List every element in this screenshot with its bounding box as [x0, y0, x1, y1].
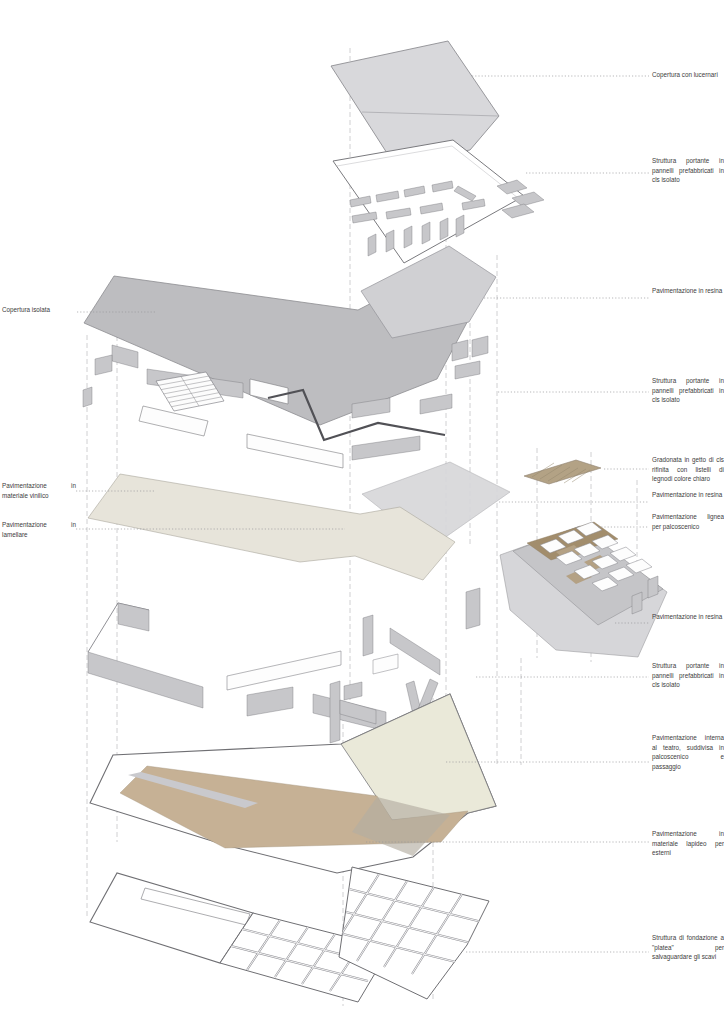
- label-pavimentazione-resina-2: Pavimentazione in resina: [652, 490, 724, 500]
- stage-module-layer: [500, 522, 667, 657]
- label-struttura-portante-2: Struttura portante in pannelli prefabbri…: [652, 376, 724, 405]
- theatre-floor-layer: [90, 694, 496, 873]
- label-copertura-lucernari: Copertura con lucernari: [652, 70, 724, 80]
- structure-top-layer: [333, 140, 544, 263]
- label-gradonata: Gradonata in getto di cls rifinita con l…: [652, 455, 724, 484]
- label-pavimentazione-teatro: Pavimentazione interna al teatro, suddiv…: [652, 733, 724, 771]
- label-pavimentazione-lapidea: Pavimentazione in materiale lapideo per …: [652, 829, 724, 858]
- label-struttura-portante-1: Struttura portante in pannelli prefabbri…: [652, 156, 724, 185]
- label-pavimentazione-lignea: Pavimentazione lignea per palcoscenico: [652, 512, 724, 531]
- label-fondazione-platea: Struttura di fondazione a "platea" per s…: [652, 933, 724, 962]
- label-struttura-portante-3: Struttura portante in pannelli prefabbri…: [652, 661, 724, 690]
- label-pavimentazione-resina-3: Pavimentazione in resina: [652, 612, 724, 622]
- label-copertura-isolata: Copertura isolata: [2, 305, 76, 315]
- exploded-axonometric-drawing: [0, 0, 724, 1024]
- exploded-axonometric-page: Copertura con lucernari Struttura portan…: [0, 0, 724, 1024]
- label-pavimentazione-vinilica: Pavimentazione in materiale vinilico: [2, 481, 76, 500]
- foundation-layer: [90, 867, 489, 1002]
- gradonata-layer: [524, 460, 601, 484]
- label-pavimentazione-lamellare: Pavimentazione in lamellare: [2, 520, 76, 539]
- label-pavimentazione-resina-1: Pavimentazione in resina: [652, 286, 724, 296]
- roof-skylights-layer: [331, 41, 499, 164]
